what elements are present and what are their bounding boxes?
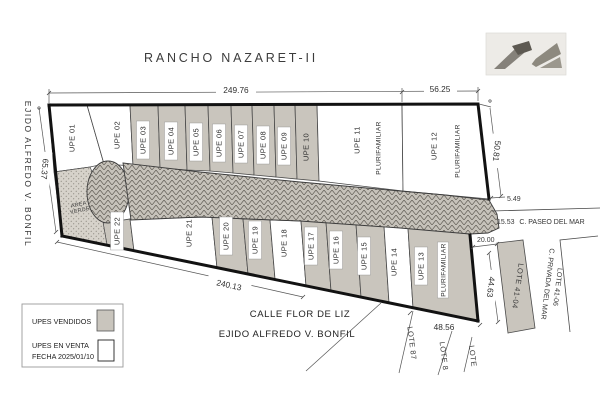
dim-left-edge: 65.37 bbox=[39, 158, 51, 180]
lot-label-upe-22: UPE 22 bbox=[113, 217, 122, 245]
lot-label-upe-02: UPE 02 bbox=[113, 121, 122, 149]
lot-label-upe-09: UPE 09 bbox=[280, 132, 289, 160]
neighbor-lote: LOTE bbox=[467, 345, 479, 368]
lot-label-upe-19: UPE 19 bbox=[251, 226, 260, 254]
lot-sublabel-upe-12: PLURIFAMILIAR bbox=[454, 124, 461, 177]
lot-label-upe-06: UPE 06 bbox=[215, 129, 224, 157]
legend: UPES VENDIDOS UPES EN VENTA FECHA 2025/0… bbox=[22, 304, 123, 367]
street-calle-flor: CALLE FLOR DE LIZ bbox=[250, 309, 350, 320]
plan-canvas: RANCHO NAZARET-II bbox=[0, 0, 600, 400]
legend-sold-label: UPES VENDIDOS bbox=[32, 317, 91, 326]
lot-label-upe-13: UPE 13 bbox=[417, 252, 426, 280]
lot-label-upe-07: UPE 07 bbox=[237, 130, 246, 158]
dim-top-main: 249.76 bbox=[223, 85, 249, 95]
street-ejido-bottom: EJIDO ALFREDO V. BONFIL bbox=[219, 329, 355, 340]
legend-swatch-for-sale bbox=[98, 340, 114, 361]
lot-label-upe-03: UPE 03 bbox=[139, 126, 148, 154]
legend-date-value: 2025/01/10 bbox=[58, 352, 94, 361]
lot-label-upe-18: UPE 18 bbox=[280, 229, 289, 257]
lot-label-upe-17: UPE 17 bbox=[307, 232, 316, 260]
lot-sublabel-upe-13: PLURIFAMILIAR bbox=[440, 243, 447, 296]
neighbor-lote-87: LOTE 87 bbox=[405, 326, 418, 360]
lot-label-upe-16: UPE 16 bbox=[332, 236, 341, 264]
company-logo-icon bbox=[486, 33, 566, 75]
neighbor-lote-8: LOTE 8 bbox=[438, 341, 450, 371]
subdivision-plan: RANCHO NAZARET-II bbox=[0, 0, 600, 400]
legend-swatch-sold bbox=[97, 310, 114, 331]
street-paseo-label: C. PASEO DEL MAR bbox=[519, 219, 584, 226]
lot-sublabel-upe-11: PLURIFAMILIAR bbox=[375, 121, 382, 174]
lot-label-upe-04: UPE 04 bbox=[167, 127, 176, 155]
lot-label-upe-14: UPE 14 bbox=[390, 248, 399, 276]
lot-label-upe-12: UPE 12 bbox=[430, 132, 439, 160]
lot-upe-12 bbox=[402, 104, 489, 199]
dim-jog: 5.49 bbox=[507, 196, 521, 203]
plan-title: RANCHO NAZARET-II bbox=[144, 51, 318, 65]
dim-paseo-offset: 15.53 bbox=[497, 219, 515, 226]
lot-label-upe-10: UPE 10 bbox=[302, 133, 311, 161]
dim-lote-width: 20.00 bbox=[477, 237, 495, 244]
neighbor-lote-41-06: LOTE 41-06 bbox=[551, 268, 563, 307]
street-left-label: EJIDO ALFREDO V. BONFIL bbox=[23, 101, 33, 248]
lot-label-upe-15: UPE 15 bbox=[360, 242, 369, 270]
dim-bottom-right: 48.56 bbox=[434, 322, 455, 332]
lot-label-upe-01: UPE 01 bbox=[68, 124, 77, 152]
lot-label-upe-05: UPE 05 bbox=[192, 128, 201, 156]
lot-upe-21 bbox=[130, 217, 217, 268]
dim-top-right: 56.25 bbox=[430, 84, 451, 94]
lot-label-upe-20: UPE 20 bbox=[222, 222, 231, 250]
lot-label-upe-11: UPE 11 bbox=[353, 126, 362, 154]
street-privada-label: C. PRIVADA DEL MAR bbox=[539, 248, 555, 320]
lot-label-upe-08: UPE 08 bbox=[259, 131, 268, 159]
legend-for-sale-label: UPES EN VENTA bbox=[32, 341, 89, 350]
lot-label-upe-21: UPE 21 bbox=[185, 219, 194, 247]
legend-date-label: FECHA bbox=[32, 352, 57, 361]
